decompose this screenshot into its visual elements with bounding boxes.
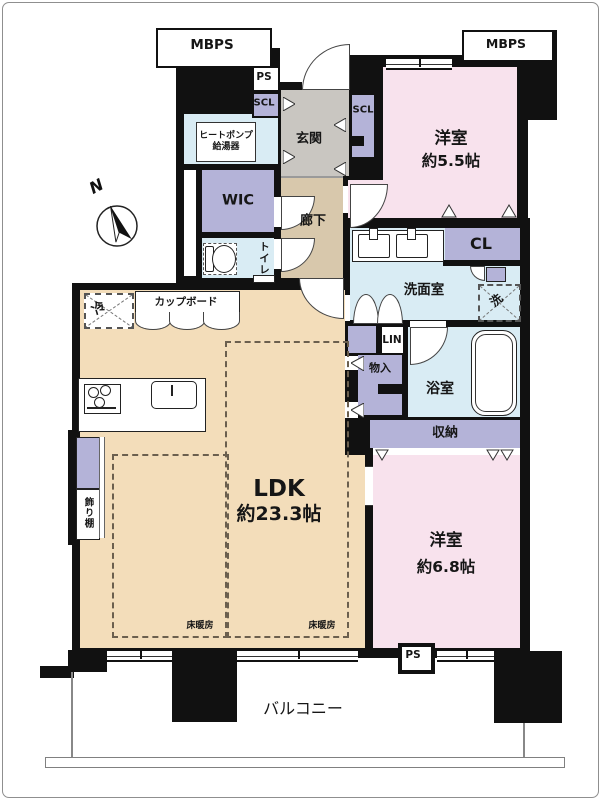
balcony-left-line: [71, 672, 73, 758]
closet-door-mark: [441, 204, 457, 218]
label-mbps-left: MBPS: [190, 38, 233, 54]
label-western2-name: 洋室: [430, 532, 463, 551]
door-mark: [334, 162, 346, 176]
room-western-2: [373, 455, 520, 648]
compass: N: [84, 172, 150, 252]
wall-stub: [40, 666, 74, 678]
label-entrance: 玄関: [296, 133, 322, 148]
label-toilet: トイレ: [258, 241, 270, 276]
stove-line: [87, 407, 116, 409]
balcony-right-line: [523, 723, 525, 758]
closet-lin: [348, 326, 376, 353]
label-hallway: 廊下: [300, 215, 326, 230]
wall: [378, 384, 402, 394]
cupboard-scallop: [203, 312, 240, 330]
label-scl-right: SCL: [353, 104, 374, 116]
faucet: [407, 228, 416, 240]
toilet-bowl: [212, 245, 236, 273]
label-scl-left: SCL: [254, 97, 275, 109]
faucet: [369, 228, 378, 240]
label-cl: CL: [470, 235, 492, 253]
window-ldk-1: [107, 649, 172, 662]
label-kazaridana: 飾り棚: [82, 497, 93, 529]
western2-sliding-door: [365, 466, 373, 506]
label-wic: WIC: [222, 193, 254, 210]
kitchen-sink: [151, 381, 197, 409]
closet-door-mark: [501, 204, 517, 218]
pillar: [172, 648, 237, 722]
floorplan-canvas: N MBPS MBPS PS SCL SCL 玄関 ヒートポンプ 給湯器 WIC…: [0, 0, 601, 800]
cupboard-scallop: [169, 312, 205, 330]
pillar: [494, 651, 562, 723]
heat-pump-line1: ヒートポンプ: [199, 131, 253, 142]
cl-mini-box: [486, 267, 506, 282]
stove-burner: [100, 385, 111, 396]
door-gap: [274, 239, 281, 269]
label-lin: LIN: [382, 334, 401, 346]
label-heat-pump: ヒートポンプ 給湯器: [196, 122, 256, 162]
closet-door-mark: [486, 449, 500, 461]
monoire-door-mark: [351, 356, 364, 371]
window-ldk-2: [237, 649, 358, 662]
label-floor-heating-2: 床暖房: [308, 621, 335, 631]
door-gap: [274, 197, 281, 227]
window-western1-top: [386, 57, 452, 70]
label-ps-top: PS: [256, 71, 271, 83]
label-washroom: 洗面室: [404, 283, 445, 299]
balcony-slab: [45, 757, 565, 768]
closet-door-mark: [375, 449, 389, 461]
window-western2: [437, 649, 494, 662]
compass-north-letter: N: [86, 174, 107, 197]
label-western1-name: 洋室: [435, 130, 468, 149]
label-shuno: 収納: [432, 427, 458, 442]
door-mark: [283, 150, 295, 164]
label-balcony: バルコニー: [263, 700, 343, 718]
shelf-kazaridana: [76, 437, 100, 489]
label-floor-heating-1: 床暖房: [186, 621, 213, 631]
closet-door-mark: [500, 449, 514, 461]
monoire-door-mark: [351, 403, 364, 418]
wall: [352, 136, 364, 146]
label-ldk-area: 約23.3帖: [237, 504, 322, 526]
label-western2-area: 約6.8帖: [417, 559, 475, 577]
label-ps-bottom: PS: [405, 649, 420, 661]
door-mark: [334, 118, 346, 132]
toilet-counter: [253, 275, 275, 283]
label-western1-area: 約5.5帖: [422, 153, 480, 171]
cupboard-scallop: [135, 312, 171, 330]
door-mark: [283, 97, 295, 111]
shelf-front-line: [99, 437, 105, 538]
bathtub-inner: [475, 334, 513, 412]
heat-pump-line2: 給湯器: [212, 142, 239, 153]
kitchen-faucet: [171, 385, 173, 396]
label-monoire: 物入: [369, 363, 391, 376]
label-ldk-name: LDK: [253, 476, 305, 502]
label-mbps-right: MBPS: [486, 37, 526, 51]
label-cupboard: カップボード: [155, 296, 218, 308]
floor-heating-area-1: [112, 454, 229, 638]
void: [184, 170, 196, 276]
label-bathroom: 浴室: [426, 381, 454, 397]
